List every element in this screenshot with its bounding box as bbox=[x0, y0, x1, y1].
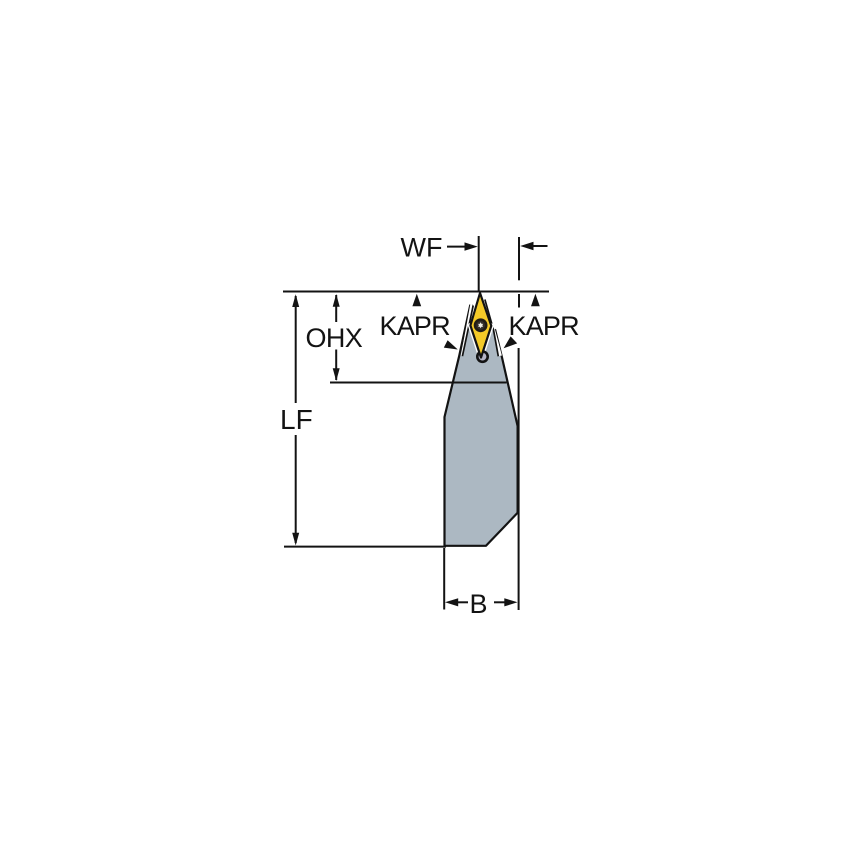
svg-text:OHX: OHX bbox=[306, 323, 363, 353]
svg-text:LF: LF bbox=[280, 404, 313, 435]
svg-text:WF: WF bbox=[401, 233, 443, 263]
svg-text:B: B bbox=[470, 589, 488, 619]
svg-text:KAPR: KAPR bbox=[509, 311, 580, 341]
svg-text:KAPR: KAPR bbox=[380, 311, 451, 341]
